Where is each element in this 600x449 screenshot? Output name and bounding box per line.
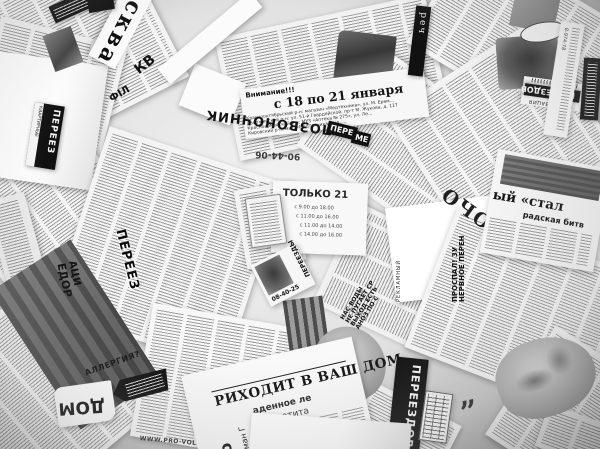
fragment-rech: реч — [416, 12, 428, 36]
table-rows-texture — [422, 394, 450, 441]
schedule-line: с 11.00 до 14.00 — [300, 223, 343, 229]
boxed-clipping — [245, 194, 288, 249]
stalingrad-article-scrap: ый «стал радская битв — [480, 149, 600, 272]
schedule-scrap: ТОЛЬКО 21 с 9.00 до 18.00 с 11.00 до 16.… — [271, 180, 368, 255]
dom-scrap: ДОМ — [53, 380, 116, 428]
fragment-phone-inverted: 90-44-06 — [255, 149, 300, 160]
schedule-line: с 9.00 до 18.00 — [294, 205, 334, 211]
fragment-nervnoe: НЕРВНОЕ ПЕРЕН — [459, 235, 466, 302]
fragment-prospal-block: ПРОСПАЛ! ЗУ НЕРВНОЕ ПЕРЕН — [452, 235, 466, 302]
fragment-dom-inverted: ДОМ — [58, 396, 106, 416]
fragment-quote-marks: ” — [458, 396, 481, 429]
fragment-phone-vertical: 8-974-78 — [560, 27, 568, 50]
newsprint-texture — [249, 198, 283, 243]
banner-kvartirnye-label: КВАРТИРНЫЕ — [32, 105, 41, 136]
fragment-me: МЕ — [354, 134, 369, 145]
newspaper-collage-photo: осква КВ ФІЛ КВАРТИРНЫЕ ПЕРЕЕЗ ПЕРЕЕЗ АЦ… — [0, 0, 600, 449]
schedule-line: с 14.00 до 16.00 — [299, 232, 342, 238]
black-wedge — [580, 57, 600, 120]
banner-pereez-label: ПЕРЕЕЗ — [44, 109, 60, 155]
schedule-line: с 11.00 до 16.00 — [296, 214, 339, 220]
fine-print-texture — [584, 62, 598, 117]
schedule-title: ТОЛЬКО 21 — [283, 189, 349, 201]
fragment-reklamny: РЕКЛАМНЫЙ — [397, 260, 402, 302]
article-lo-vertical: ло — [217, 441, 238, 449]
